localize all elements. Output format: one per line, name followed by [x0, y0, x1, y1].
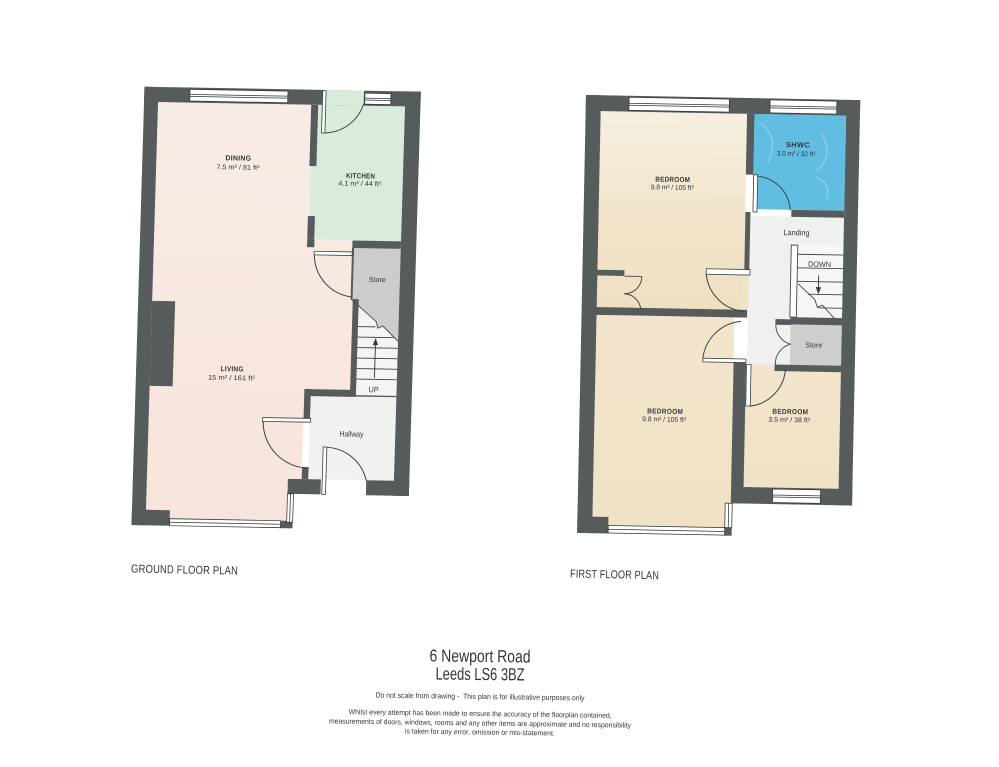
svg-text:15 m² / 161 ft²: 15 m² / 161 ft² [208, 375, 256, 383]
svg-text:Hallway: Hallway [339, 429, 363, 438]
svg-text:3.5 m² / 38 ft²: 3.5 m² / 38 ft² [768, 417, 811, 425]
svg-text:DINING: DINING [225, 153, 251, 162]
svg-text:BEDROOM: BEDROOM [655, 174, 690, 184]
svg-text:BEDROOM: BEDROOM [772, 407, 808, 417]
svg-text:4.1 m² / 44 ft²: 4.1 m² / 44 ft² [338, 180, 382, 188]
svg-text:9.8 m² / 105 ft²: 9.8 m² / 105 ft² [651, 184, 695, 192]
svg-text:KITCHEN: KITCHEN [346, 171, 375, 181]
svg-text:Store: Store [369, 275, 386, 284]
svg-text:LIVING: LIVING [221, 364, 244, 373]
svg-text:DOWN: DOWN [808, 260, 831, 269]
svg-text:Store: Store [805, 340, 822, 349]
svg-text:SHWC: SHWC [786, 140, 810, 149]
svg-text:3.0 m² / 32 ft²: 3.0 m² / 32 ft² [777, 151, 817, 159]
svg-text:UP: UP [368, 385, 378, 394]
svg-text:FIRST FLOOR PLAN: FIRST FLOOR PLAN [570, 569, 659, 583]
svg-text:Leeds LS6 3BZ: Leeds LS6 3BZ [435, 664, 524, 685]
svg-text:GROUND FLOOR PLAN: GROUND FLOOR PLAN [131, 564, 238, 578]
svg-text:Landing: Landing [783, 228, 809, 237]
svg-text:7.5 m² / 81 ft²: 7.5 m² / 81 ft² [216, 164, 260, 172]
svg-text:9.8 m² / 105 ft²: 9.8 m² / 105 ft² [642, 416, 687, 424]
svg-text:BEDROOM: BEDROOM [647, 406, 683, 416]
